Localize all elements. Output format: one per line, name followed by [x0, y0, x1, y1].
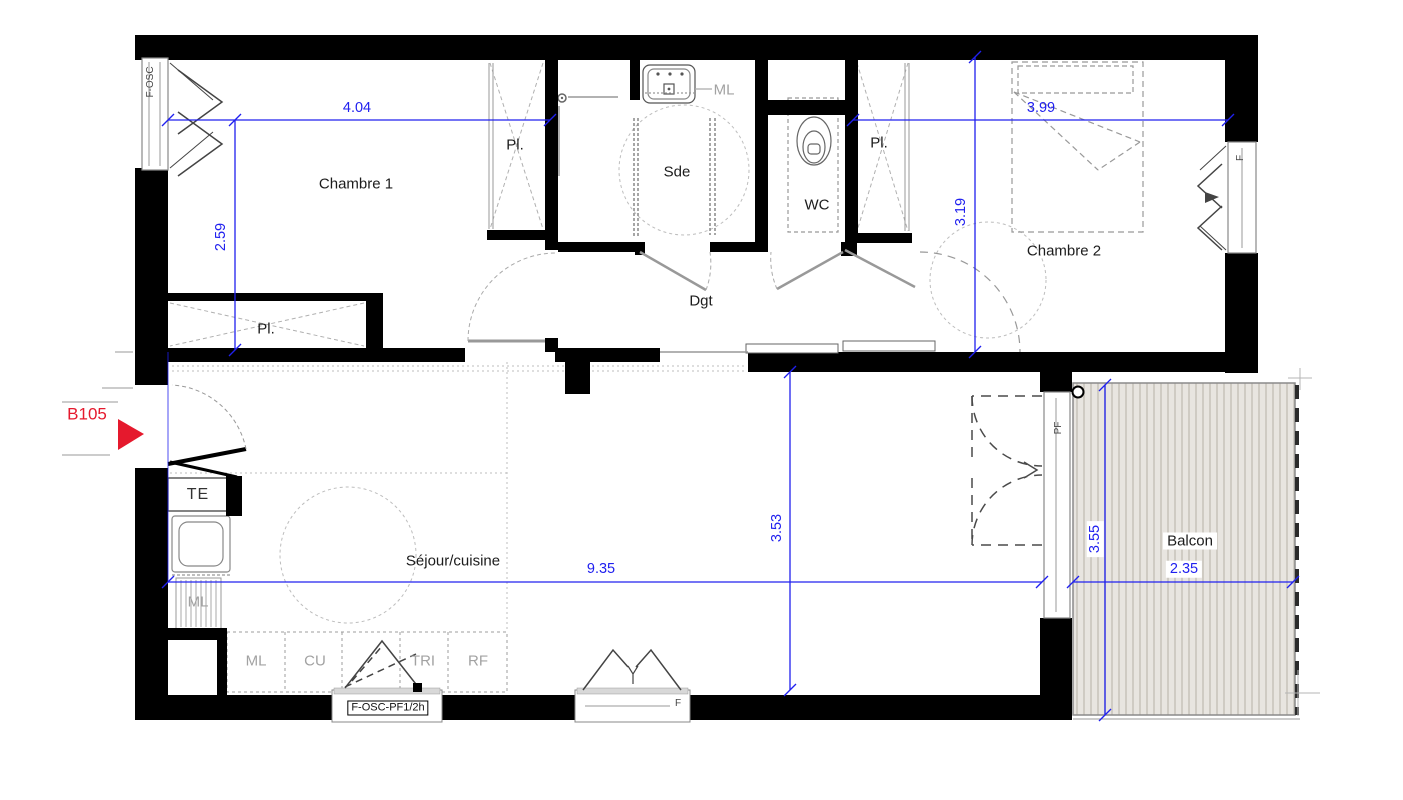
counter-label-tri: TRI: [411, 654, 435, 669]
door-wc: [771, 252, 843, 289]
room-label-chambre1: Chambre 1: [319, 177, 393, 192]
dimension-chambre1-depth: 2.59: [214, 223, 229, 251]
window-label-sejour: F: [675, 699, 681, 709]
dimension-balcon-depth: 3.55: [1087, 521, 1104, 557]
door-handle-icon: [1073, 387, 1084, 398]
window-chambre2: [1198, 142, 1256, 253]
window-label-kitchen: F-OSC-PF1/2h: [347, 701, 428, 716]
closet-label-pl-chambre1: Pl.: [506, 138, 524, 153]
window-label-chambre2: F: [1236, 155, 1246, 161]
dimension-sejour-width: 9.35: [587, 562, 615, 577]
entrance-arrow-icon: [118, 419, 144, 450]
kitchen-zone-guides: [170, 362, 745, 632]
dimension-chambre1-width: 4.04: [343, 101, 371, 116]
unit-label: B105: [67, 406, 107, 423]
room-label-chambre2: Chambre 2: [1027, 244, 1101, 259]
fixture-label-ml-sde: ML: [714, 83, 735, 98]
bed: [1012, 62, 1143, 232]
sink-sde: [643, 65, 712, 103]
casement-symbol: [1198, 146, 1226, 250]
door-sde: [640, 252, 711, 290]
room-label-balcon: Balcon: [1163, 533, 1217, 550]
counter-label-ml: ML: [246, 654, 267, 669]
room-label-dgt: Dgt: [689, 294, 712, 309]
dimension-sejour-depth: 3.53: [770, 514, 785, 542]
room-label-sde: Sde: [664, 165, 691, 180]
door-entrance: [168, 385, 246, 464]
kitchen-sink: [172, 516, 230, 575]
window-label-pf: PF: [1054, 422, 1064, 435]
doors-balcony-french: [972, 396, 1042, 545]
room-label-sejour: Séjour/cuisine: [406, 554, 500, 569]
french-window-symbol: [583, 650, 681, 690]
door-chambre2: [845, 250, 1020, 352]
door-chambre1: [468, 253, 556, 341]
counter-label-rf: RF: [468, 654, 488, 669]
closet-label-pl-hall: Pl.: [257, 322, 275, 337]
fixture-label-te: TE: [187, 487, 209, 503]
kitchen-counter: [227, 632, 507, 692]
window-sejour: [575, 650, 690, 722]
dimension-balcon-width: 2.35: [1166, 561, 1202, 578]
window-label-fosc: F-OSC: [146, 66, 156, 97]
sliding-doors: [746, 341, 935, 353]
dimension-chambre2-width: 3.99: [1027, 101, 1055, 116]
fixture-label-ml-kitchen: ML: [188, 595, 209, 610]
closet-label-pl-chambre2: Pl.: [870, 136, 888, 151]
balcony-deck: [1073, 383, 1301, 719]
floor-plan: B105 F-OSC Chambre 1 Pl. ML Sde WC Pl. C…: [0, 0, 1403, 800]
dimension-chambre2-depth: 3.19: [954, 198, 969, 226]
counter-label-cu: CU: [304, 654, 326, 669]
room-label-wc: WC: [805, 198, 830, 213]
shower: [558, 94, 715, 238]
floor-plan-drawing: [0, 0, 1403, 800]
